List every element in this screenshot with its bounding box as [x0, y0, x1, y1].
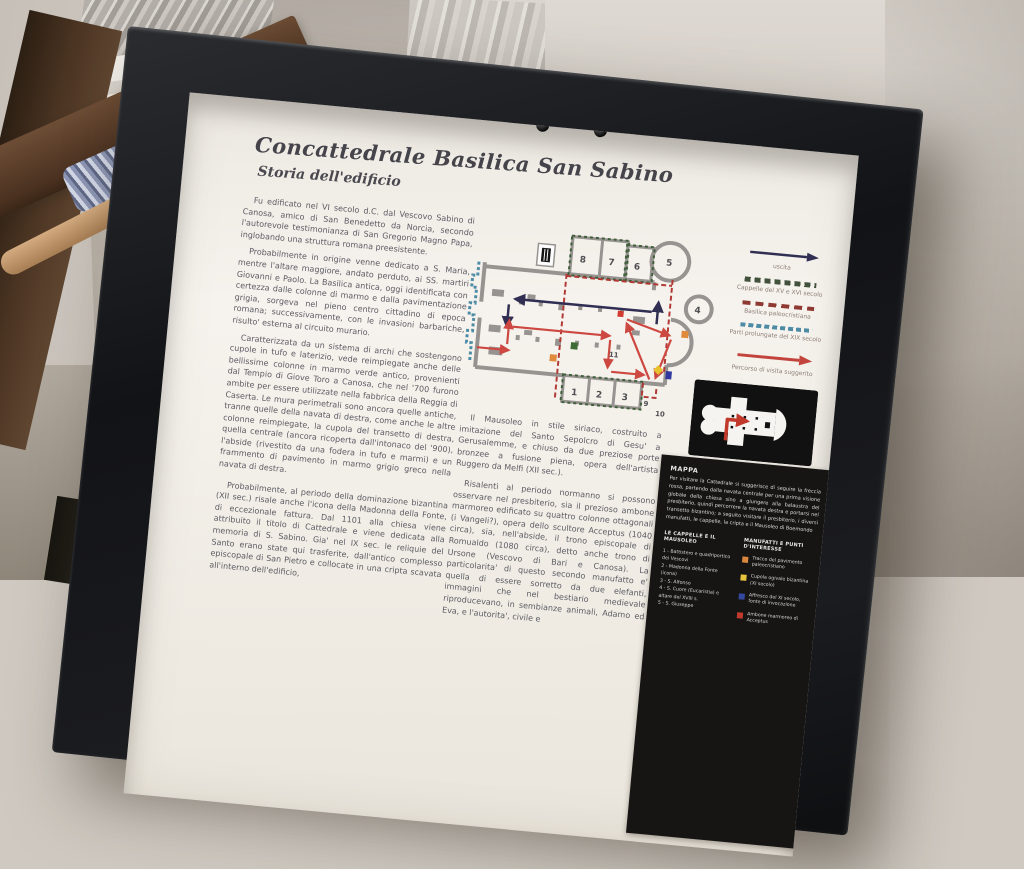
- entrance-icon: [537, 243, 556, 266]
- paper-clip-icon: [536, 118, 550, 132]
- list-item: Cupola ogivale bizantina (XI secolo): [740, 574, 813, 593]
- floor-plan-svg: 8 7 6 5 4 1 2 3 11 9 10: [458, 204, 734, 429]
- paragraph: Il Mausoleo in stile siriaco, costruito …: [455, 411, 662, 488]
- legend-item-paleocristiana: Basilica paleocristiana: [727, 299, 828, 323]
- navy-arrow-icon: [746, 246, 821, 263]
- paragraph: Caratterizzata da un sistema di archi ch…: [218, 331, 462, 491]
- red-marker-icon: [737, 612, 744, 619]
- svg-text:6: 6: [633, 262, 640, 273]
- cappelle-list: LE CAPPELLE E IL MAUSOLEO 1 - Battistero…: [656, 529, 736, 628]
- mappa-columns: LE CAPPELLE E IL MAUSOLEO 1 - Battistero…: [656, 529, 816, 636]
- mappa-info-box: MAPPA Per visitare la Cattedrale si sugg…: [626, 454, 833, 849]
- paragraph: Probabilmente, al periodo della dominazi…: [209, 478, 449, 592]
- manufatti-list: MANUFATTI E PUNTI D'INTERESSE Tracce del…: [736, 537, 816, 636]
- paragraph: Probabilmente in origine venne dedicato …: [232, 245, 471, 348]
- svg-text:3: 3: [621, 393, 628, 404]
- svg-text:11: 11: [609, 351, 620, 360]
- svg-text:2: 2: [595, 390, 602, 401]
- blue-marker-icon: [738, 593, 745, 600]
- church-interior-scene: Concattedrale Basilica San Sabino Storia…: [0, 0, 1024, 577]
- legend-item-parti-prolungate: Parti prolungate del XIX secolo: [725, 321, 826, 345]
- plan-legend: uscita Cappelle del XV e XVI secolo Basi…: [721, 240, 834, 388]
- orange-marker-icon: [742, 556, 749, 563]
- svg-text:8: 8: [579, 255, 586, 266]
- information-display-frame: Concattedrale Basilica San Sabino Storia…: [52, 26, 924, 836]
- svg-text:7: 7: [608, 258, 615, 269]
- svg-text:10: 10: [655, 410, 666, 419]
- list-item: Tracce del pavimento paleocristiano: [741, 555, 814, 574]
- middle-text-column: Il Mausoleo in stile siriaco, costruito …: [441, 411, 662, 639]
- legend-item-percorso: Percorso di visita suggerito: [722, 344, 824, 380]
- yellow-marker-icon: [740, 575, 747, 582]
- plan-columns: [486, 289, 646, 369]
- svg-text:1: 1: [571, 388, 578, 399]
- svg-text:5: 5: [666, 258, 673, 269]
- legend-item-cappelle: Cappelle del XV e XVI secolo: [729, 275, 830, 300]
- information-panel-paper: Concattedrale Basilica San Sabino Storia…: [123, 92, 858, 856]
- legend-item-uscita: uscita: [732, 240, 834, 276]
- paragraph: Risalenti al periodo normanno si possono…: [442, 477, 656, 635]
- svg-text:4: 4: [694, 306, 701, 317]
- panel-subtitle: Storia dell'edificio: [257, 164, 401, 190]
- paper-clip-icon: [593, 124, 607, 138]
- svg-text:9: 9: [643, 400, 649, 408]
- basilica-floor-plan: 8 7 6 5 4 1 2 3 11 9 10: [458, 204, 734, 429]
- list-item: Affresco del XI secolo, fonte di invocaz…: [738, 592, 811, 611]
- crypt-plan-svg: [688, 379, 819, 466]
- left-text-column: Fu edificato nel VI secolo d.C. dal Vesc…: [208, 194, 475, 598]
- list-item: Ambone marmoreo di Acceptus: [736, 611, 809, 630]
